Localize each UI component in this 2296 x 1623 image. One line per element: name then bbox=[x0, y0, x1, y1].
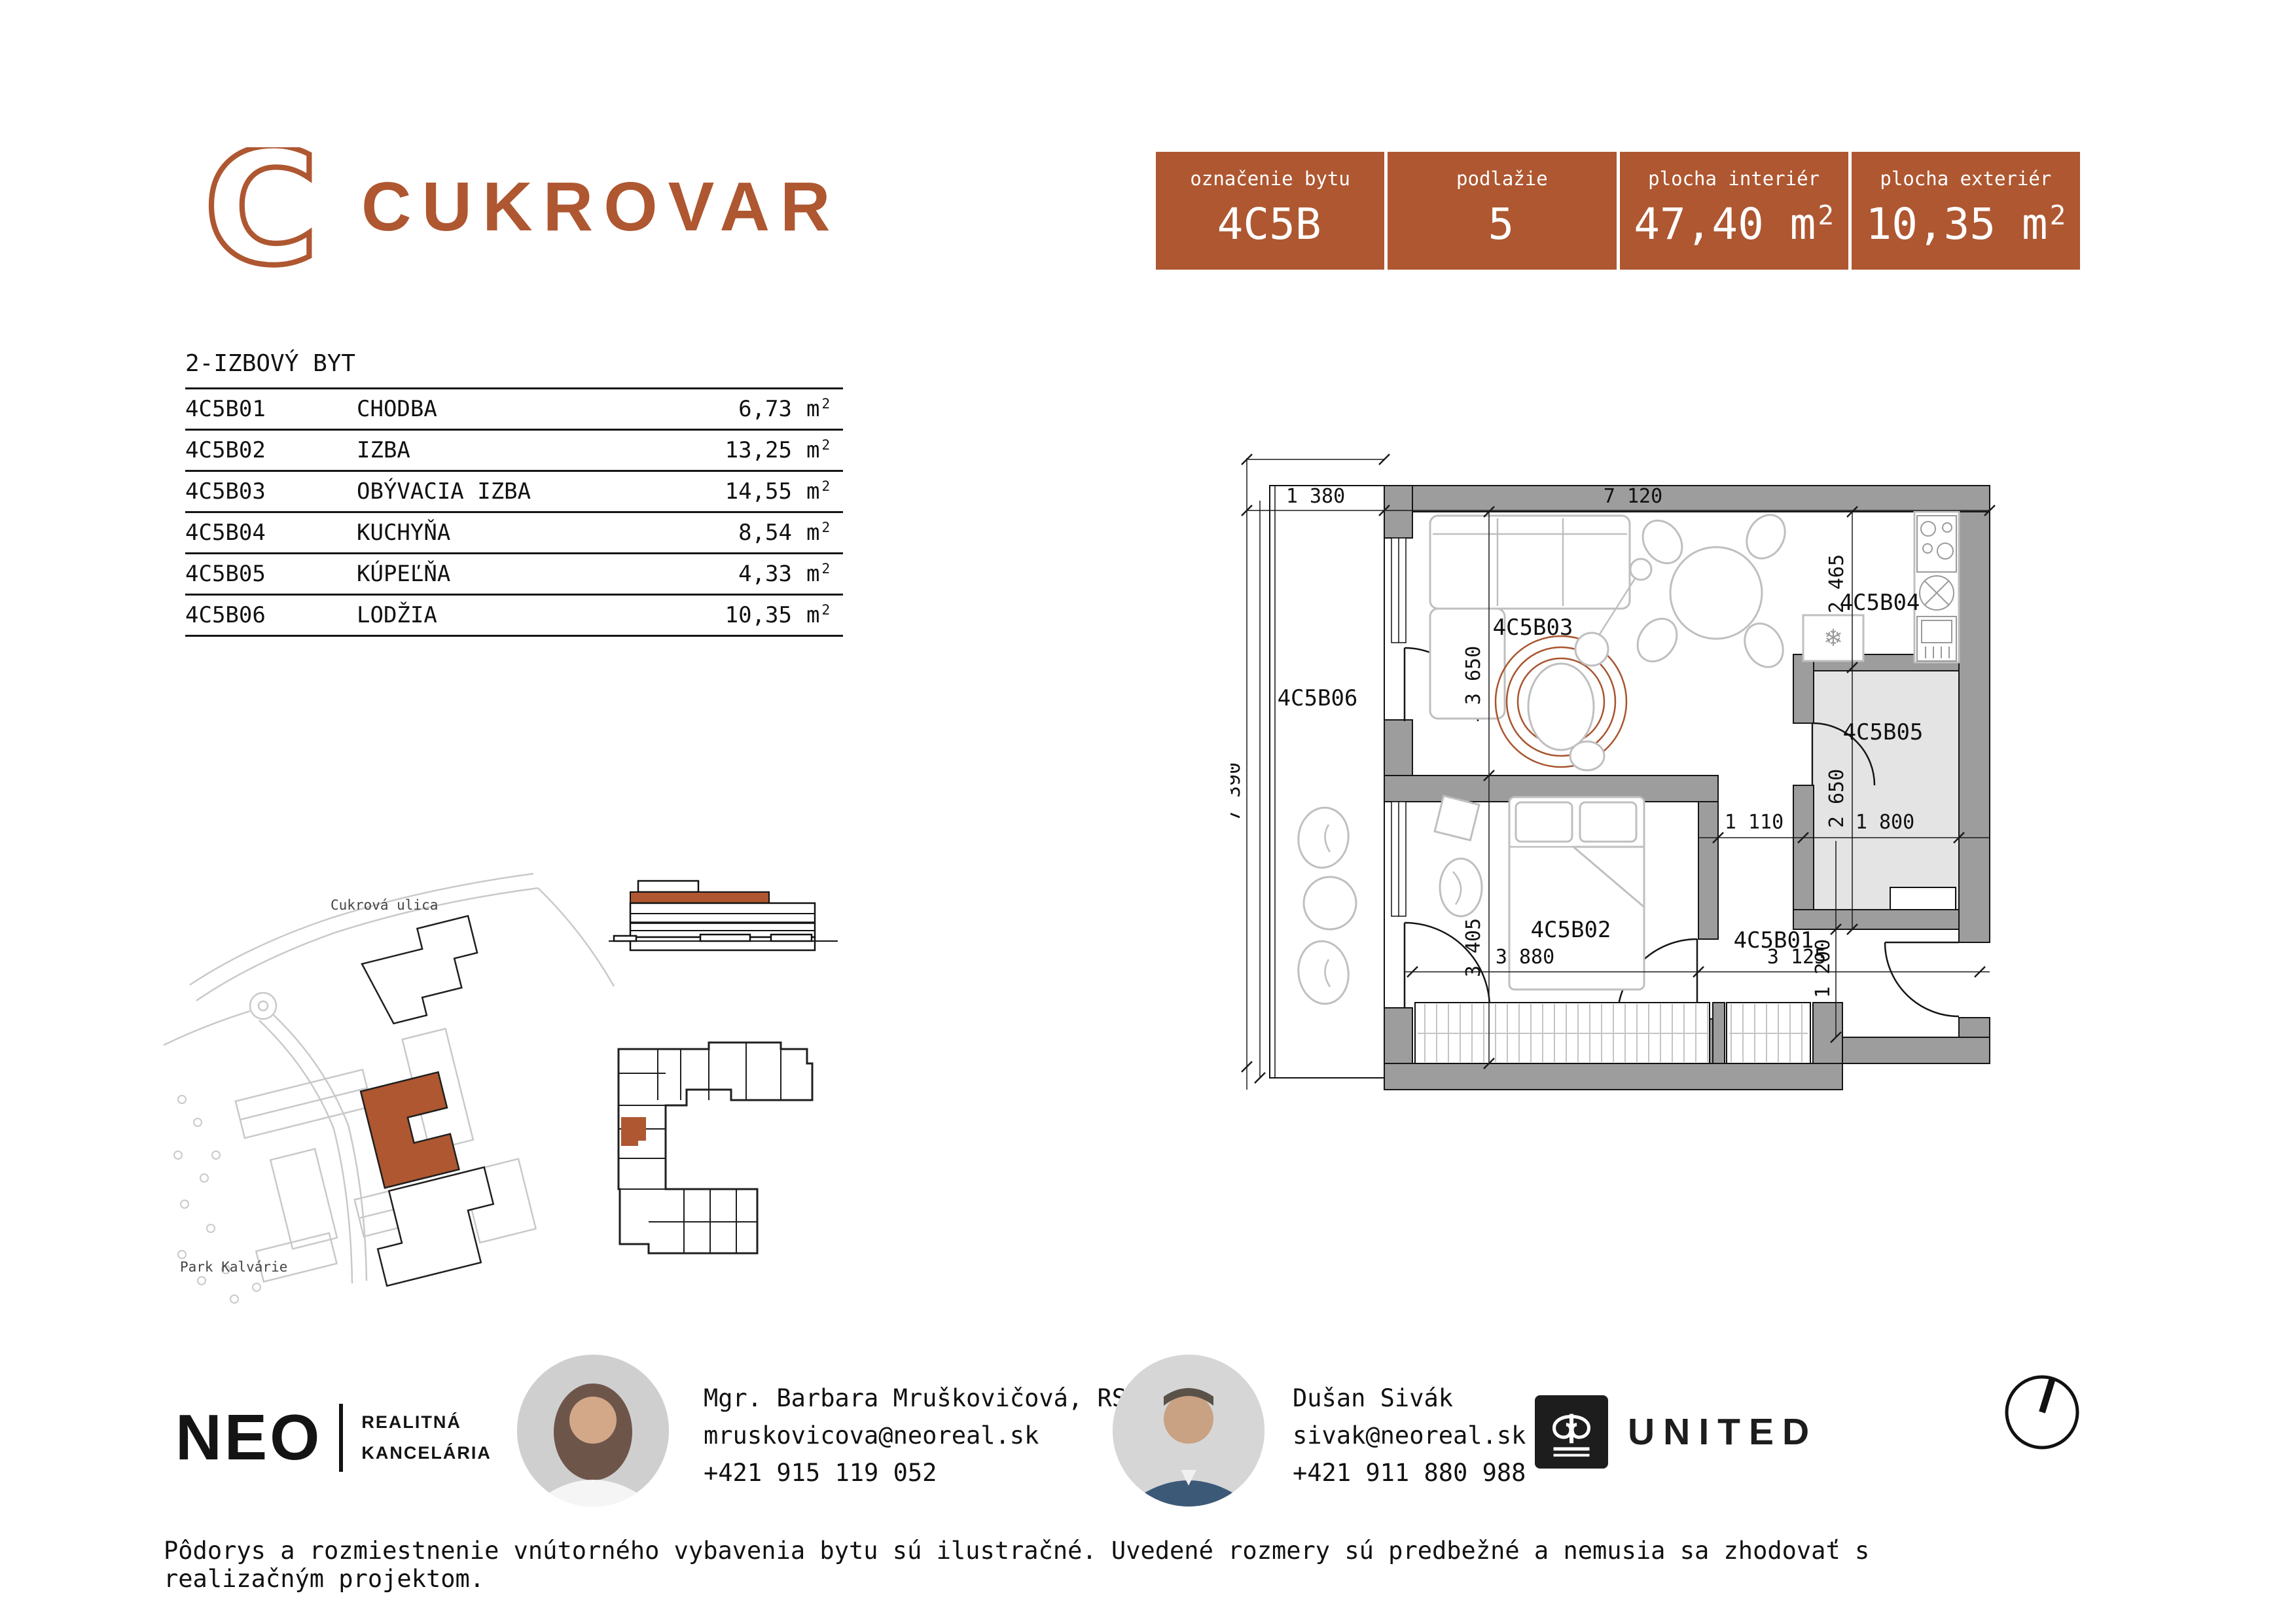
room-code: 4C5B04 bbox=[185, 520, 357, 546]
map-park-label: Park Kalvárie bbox=[180, 1259, 287, 1275]
room-list: 2-IZBOVÝ BYT 4C5B01 CHODBA 6,73 m2 4C5B0… bbox=[185, 350, 843, 637]
room-code: 4C5B01 bbox=[185, 396, 357, 422]
room-area: 13,25 bbox=[713, 437, 792, 463]
summary-cell-exterior-area: plocha exteriér 10,35 m2 bbox=[1852, 152, 2080, 270]
room-name: IZBA bbox=[357, 437, 713, 463]
room-unit: m2 bbox=[792, 520, 843, 546]
svg-text:7 390: 7 390 bbox=[1230, 762, 1245, 821]
avatar bbox=[1113, 1355, 1265, 1507]
map-buildings-light bbox=[215, 1019, 535, 1296]
fridge-icon: ❄ bbox=[1803, 615, 1863, 661]
dining-table-icon bbox=[1630, 508, 1793, 674]
agent2-portrait bbox=[1113, 1355, 1265, 1507]
summary-label: označenie bytu bbox=[1156, 168, 1384, 190]
cabinet-icon bbox=[1917, 616, 1956, 661]
svg-text:7 120: 7 120 bbox=[1604, 485, 1662, 508]
agent1-portrait bbox=[517, 1355, 669, 1507]
united-logo: UNITED bbox=[1535, 1395, 1818, 1469]
room-area: 6,73 bbox=[713, 396, 792, 422]
room-label-kitchen: 4C5B04 bbox=[1840, 590, 1920, 616]
room-unit: m2 bbox=[792, 437, 843, 463]
contact-phone: +421 915 119 052 bbox=[704, 1454, 1156, 1491]
room-area: 4,33 bbox=[713, 561, 792, 587]
room-unit: m2 bbox=[792, 602, 843, 628]
room-unit: m2 bbox=[792, 396, 843, 422]
table-row: 4C5B01 CHODBA 6,73 m2 bbox=[185, 387, 843, 429]
map-building-north bbox=[357, 916, 489, 1027]
svg-text:2 650: 2 650 bbox=[1825, 769, 1848, 828]
summary-label: plocha interiér bbox=[1620, 168, 1848, 190]
room-code: 4C5B06 bbox=[185, 602, 357, 628]
summary-value: 47,40 m2 bbox=[1620, 199, 1848, 249]
svg-text:1 800: 1 800 bbox=[1856, 811, 1914, 834]
contact-name: Dušan Sivák bbox=[1293, 1380, 1526, 1417]
fridge-snowflake-icon: ❄ bbox=[1823, 625, 1843, 652]
svg-text:3 650: 3 650 bbox=[1462, 646, 1485, 705]
svg-text:1 110: 1 110 bbox=[1725, 811, 1784, 834]
contact-phone: +421 911 880 988 bbox=[1293, 1454, 1526, 1491]
summary-value: 4C5B bbox=[1156, 199, 1384, 249]
disclaimer-text: Pôdorys a rozmiestnenie vnútorného vybav… bbox=[164, 1537, 1878, 1593]
room-table: 4C5B01 CHODBA 6,73 m2 4C5B02 IZBA 13,25 … bbox=[185, 387, 843, 637]
room-label-hall: 4C5B01 bbox=[1734, 927, 1814, 954]
brand-name: CUKROVAR bbox=[361, 168, 841, 247]
table-row: 4C5B05 KÚPEĽŇA 4,33 m2 bbox=[185, 552, 843, 594]
contact-name: Mgr. Barbara Mruškovičová, RSc. bbox=[704, 1380, 1156, 1417]
room-name: KÚPEĽŇA bbox=[357, 561, 713, 587]
contact-email: sivak@neoreal.sk bbox=[1293, 1417, 1526, 1454]
summary-value: 10,35 m2 bbox=[1852, 199, 2080, 249]
contact-card: Dušan Sivák sivak@neoreal.sk +421 911 88… bbox=[1293, 1380, 1526, 1491]
table-row: 4C5B02 IZBA 13,25 m2 bbox=[185, 429, 843, 470]
summary-cell-floor: podlažie 5 bbox=[1388, 152, 1616, 270]
loggia-chairs-icon bbox=[1295, 804, 1356, 1007]
neo-logo-tagline: REALITNÁ KANCELÁRIA bbox=[361, 1407, 492, 1469]
building-elevation bbox=[609, 864, 838, 955]
brand-letter: C bbox=[204, 147, 319, 281]
table-row: 4C5B04 KUCHYŇA 8,54 m2 bbox=[185, 511, 843, 552]
map-streets bbox=[164, 874, 614, 1283]
north-compass-icon bbox=[2003, 1373, 2081, 1452]
room-label-bath: 4C5B05 bbox=[1843, 719, 1924, 745]
room-code: 4C5B05 bbox=[185, 561, 357, 587]
contact-card: Mgr. Barbara Mruškovičová, RSc. mruskovi… bbox=[704, 1380, 1156, 1491]
summary-label: plocha exteriér bbox=[1852, 168, 2080, 190]
table-row: 4C5B06 LODŽIA 10,35 m2 bbox=[185, 594, 843, 637]
coffee-table-icon bbox=[1528, 664, 1604, 770]
room-label-loggia: 4C5B06 bbox=[1278, 685, 1358, 711]
summary-cell-unit-id: označenie bytu 4C5B bbox=[1156, 152, 1384, 270]
room-name: CHODBA bbox=[357, 396, 713, 422]
summary-table: označenie bytu 4C5B podlažie 5 plocha in… bbox=[1156, 152, 2080, 270]
room-list-title: 2-IZBOVÝ BYT bbox=[185, 350, 843, 377]
united-logo-icon bbox=[1535, 1395, 1608, 1469]
svg-text:3 405: 3 405 bbox=[1462, 918, 1485, 977]
room-unit: m2 bbox=[792, 561, 843, 587]
united-logo-name: UNITED bbox=[1628, 1410, 1818, 1454]
room-unit: m2 bbox=[792, 478, 843, 505]
site-map: Cukrová ulica Park Kalvárie bbox=[164, 847, 622, 1312]
map-street-label: Cukrová ulica bbox=[331, 897, 438, 913]
room-code: 4C5B02 bbox=[185, 437, 357, 463]
neo-logo: NEO REALITNÁ KANCELÁRIA bbox=[175, 1400, 492, 1474]
floor-plan: ❄ bbox=[1230, 445, 2055, 1099]
brand-logo-c: C bbox=[191, 147, 338, 281]
room-label-bedroom: 4C5B02 bbox=[1531, 917, 1611, 943]
svg-text:1 380: 1 380 bbox=[1286, 485, 1345, 508]
room-name: OBÝVACIA IZBA bbox=[357, 478, 713, 505]
floor-key-plan bbox=[612, 1037, 841, 1286]
summary-label: podlažie bbox=[1388, 168, 1616, 190]
svg-text:3 880: 3 880 bbox=[1496, 946, 1554, 969]
neo-logo-divider bbox=[339, 1404, 343, 1472]
room-code: 4C5B03 bbox=[185, 478, 357, 505]
kitchen-counter bbox=[1914, 512, 1959, 662]
brochure-page: { "colors": {"accent":"#ae5731","wall":"… bbox=[0, 0, 2296, 1623]
room-name: KUCHYŇA bbox=[357, 520, 713, 546]
svg-text:1 200: 1 200 bbox=[1812, 939, 1835, 998]
avatar bbox=[517, 1355, 669, 1507]
room-name: LODŽIA bbox=[357, 602, 713, 628]
summary-cell-interior-area: plocha interiér 47,40 m2 bbox=[1620, 152, 1848, 270]
table-row: 4C5B03 OBÝVACIA IZBA 14,55 m2 bbox=[185, 470, 843, 511]
wardrobe-icon bbox=[1415, 1003, 1810, 1063]
room-area: 14,55 bbox=[713, 478, 792, 505]
contact-email: mruskovicova@neoreal.sk bbox=[704, 1417, 1156, 1454]
map-building-subject bbox=[340, 1067, 507, 1286]
bedroom-chair-icon bbox=[1435, 796, 1482, 916]
bathroom-niche bbox=[1890, 887, 1956, 910]
summary-value: 5 bbox=[1388, 199, 1616, 249]
room-area: 8,54 bbox=[713, 520, 792, 546]
highlighted-floor bbox=[630, 892, 769, 903]
room-area: 10,35 bbox=[713, 602, 792, 628]
neo-logo-name: NEO bbox=[175, 1400, 322, 1474]
room-label-living: 4C5B03 bbox=[1493, 615, 1573, 641]
